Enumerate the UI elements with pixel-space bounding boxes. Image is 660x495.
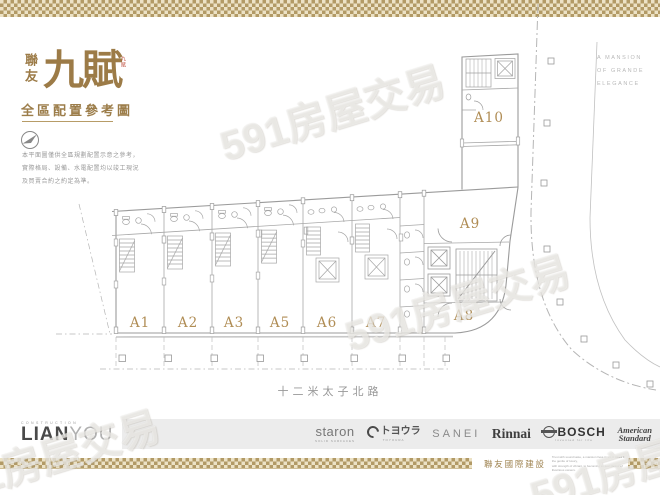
- partner-logos: staron SOLID SURFACES トヨウラ TOYOURA SANEI…: [315, 419, 652, 449]
- unit-label-a5: A5: [269, 315, 290, 331]
- unit-label-a2: A2: [177, 315, 198, 331]
- toyoura-logo: トヨウラ: [367, 426, 421, 438]
- company-note-line: with strength of vibrant, to becoming a …: [552, 464, 628, 473]
- staron-sub: SOLID SURFACES: [315, 440, 355, 443]
- toyoura-sub: TOYOURA: [383, 439, 405, 442]
- interior-walls: [112, 88, 518, 333]
- wall-stubs: [114, 190, 426, 333]
- company-box: 聯友國際建設 Trust with sound taste, a mansion…: [472, 456, 628, 471]
- partner-sanei: SANEI: [432, 429, 480, 440]
- staron-logo: staron: [315, 425, 354, 438]
- flyer-page: 聯友 九賦 九賦 全區配置參考圖 本平面圖僅供全區規劃配置示意之參考， 實際格局…: [0, 0, 660, 495]
- developer-name: LIANYOU: [21, 425, 114, 445]
- sanei-logo: SANEI: [432, 429, 480, 440]
- unit-label-a7: A7: [365, 315, 386, 331]
- company-note-line: Trust with sound taste, a mansion lives …: [552, 455, 628, 464]
- developer-name-you: YOU: [69, 424, 113, 445]
- unit-a10-interior: [460, 59, 519, 148]
- toyoura-text: トヨウラ: [381, 427, 421, 437]
- partner-bosch: BOSCH Invented for life: [543, 426, 606, 443]
- service-strip-fixtures: [404, 230, 423, 317]
- developer-logo-box: CONSTRUCTION LIANYOU: [0, 419, 122, 449]
- partner-toyoura: トヨウラ TOYOURA: [367, 426, 421, 443]
- american-standard-logo: American Standard: [617, 426, 651, 442]
- bosch-armature-icon: [543, 426, 555, 438]
- developer-name-lian: LIAN: [21, 424, 69, 445]
- company-name: 聯友國際建設: [484, 458, 546, 470]
- core-stair-elevators: [428, 229, 511, 318]
- unit-labels: A1 A2 A3 A5 A6 A7 A8 A9 A10: [129, 110, 504, 331]
- unit-label-a6: A6: [316, 315, 337, 331]
- partner-staron: staron SOLID SURFACES: [315, 425, 355, 443]
- partner-american-standard: American Standard: [617, 426, 651, 442]
- partner-rinnai: Rinnai: [492, 427, 531, 441]
- unit-label-a9: A9: [459, 216, 480, 232]
- toyoura-swirl-icon: [364, 423, 381, 440]
- footer-strip: CONSTRUCTION LIANYOU staron SOLID SURFAC…: [0, 419, 660, 449]
- building-outline: [112, 54, 518, 337]
- developer-logo: CONSTRUCTION LIANYOU: [21, 421, 114, 445]
- road-label: 十二米太子北路: [240, 383, 420, 399]
- unit-interiors: [114, 204, 403, 288]
- bosch-logo: BOSCH: [543, 426, 606, 438]
- rinnai-logo: Rinnai: [492, 427, 531, 441]
- unit-label-a3: A3: [223, 315, 244, 331]
- unit-label-a8: A8: [453, 308, 474, 324]
- company-note: Trust with sound taste, a mansion lives …: [552, 455, 628, 473]
- amstd-line2: Standard: [619, 433, 651, 443]
- bosch-text: BOSCH: [558, 426, 606, 438]
- unit-label-a10: A10: [473, 110, 504, 126]
- unit-label-a1: A1: [129, 315, 150, 331]
- bosch-sub: Invented for life: [555, 439, 593, 442]
